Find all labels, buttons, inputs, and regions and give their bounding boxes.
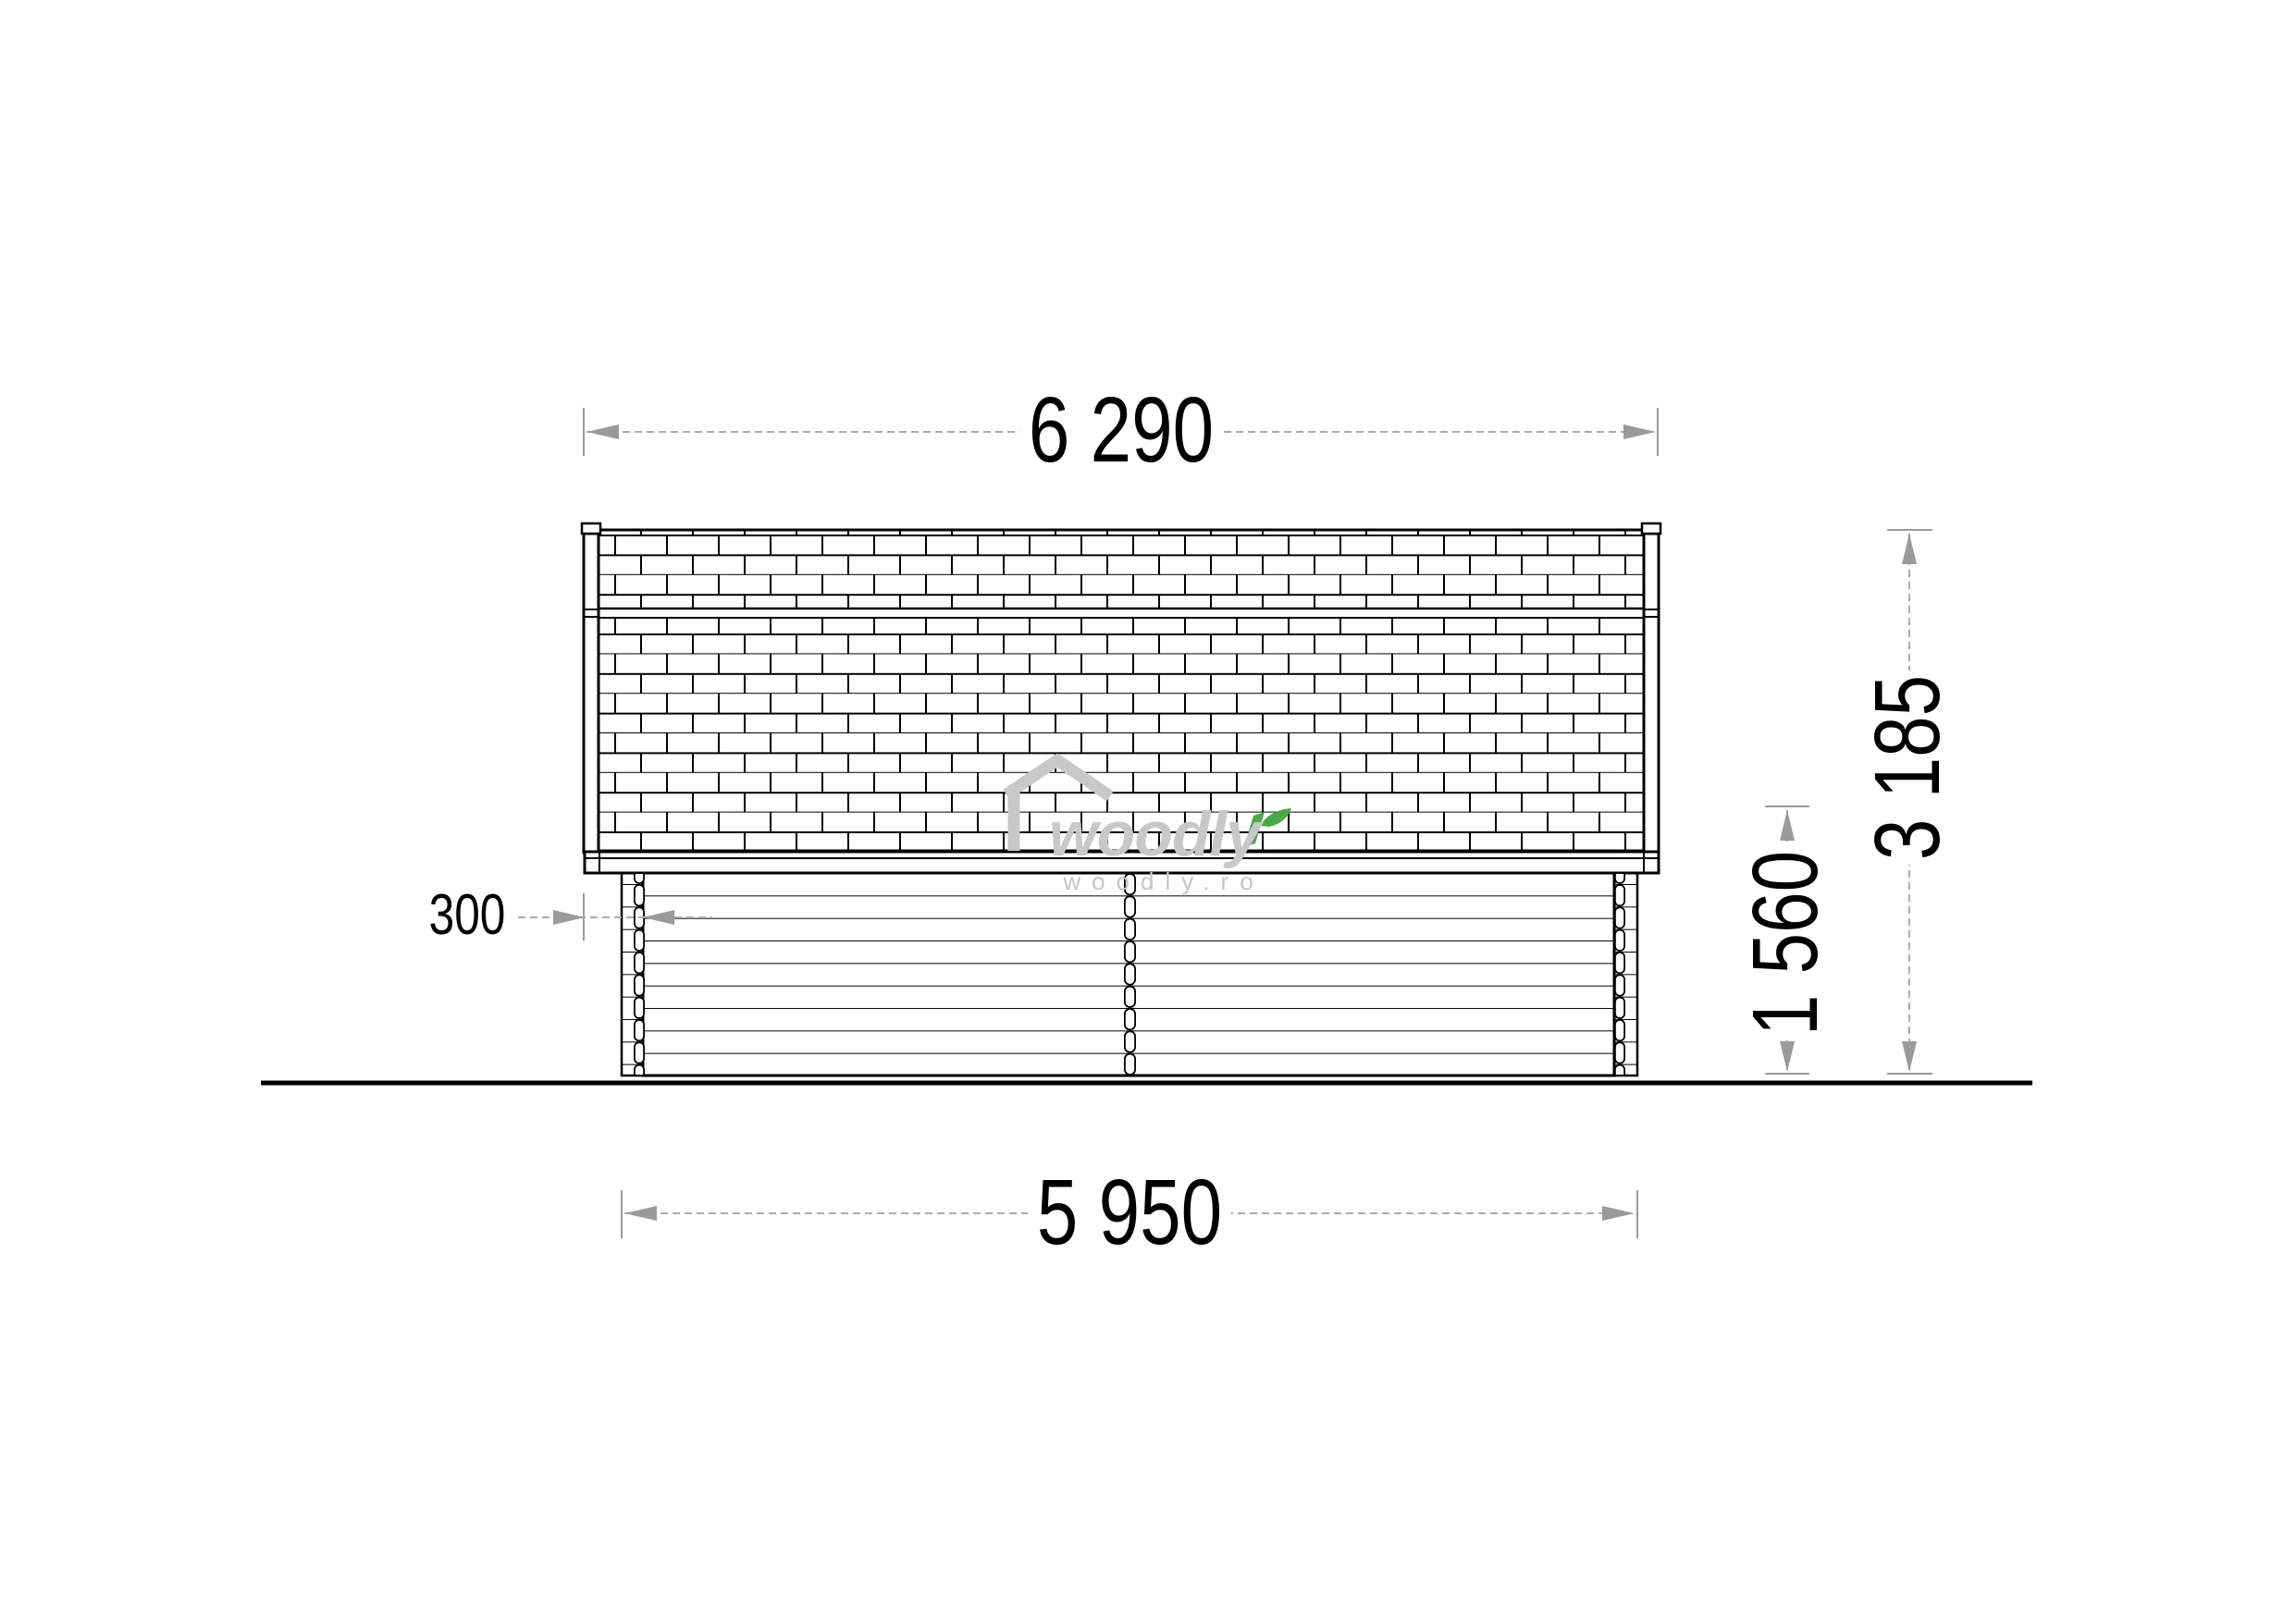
dim-roof-width-label: 6 290: [1019, 384, 1222, 476]
elevation-page: woodly woodly.ro 6 290 5 950 300 1 560 3…: [0, 0, 2296, 1623]
dim-eave-height-label: 1 560: [1739, 846, 1832, 1040]
roof-fascia-right: [1642, 523, 1660, 853]
watermark-brand: woodly: [1049, 803, 1260, 866]
watermark-site: woodly.ro: [1063, 869, 1264, 893]
roof-fascia-left: [582, 523, 600, 853]
house-roof-stroke: [1006, 760, 1110, 796]
leaf-icon: [1260, 808, 1291, 827]
wall-partition-joint: [1124, 873, 1136, 1076]
wall-corner-right: [1614, 873, 1637, 1076]
dim-wall-width-label: 5 950: [1028, 1166, 1230, 1259]
dim-total-height-label: 3 185: [1861, 670, 1954, 865]
dim-overhang-label: 300: [420, 887, 514, 944]
wall: [622, 873, 1637, 1076]
wall-corner-left: [622, 873, 645, 1076]
